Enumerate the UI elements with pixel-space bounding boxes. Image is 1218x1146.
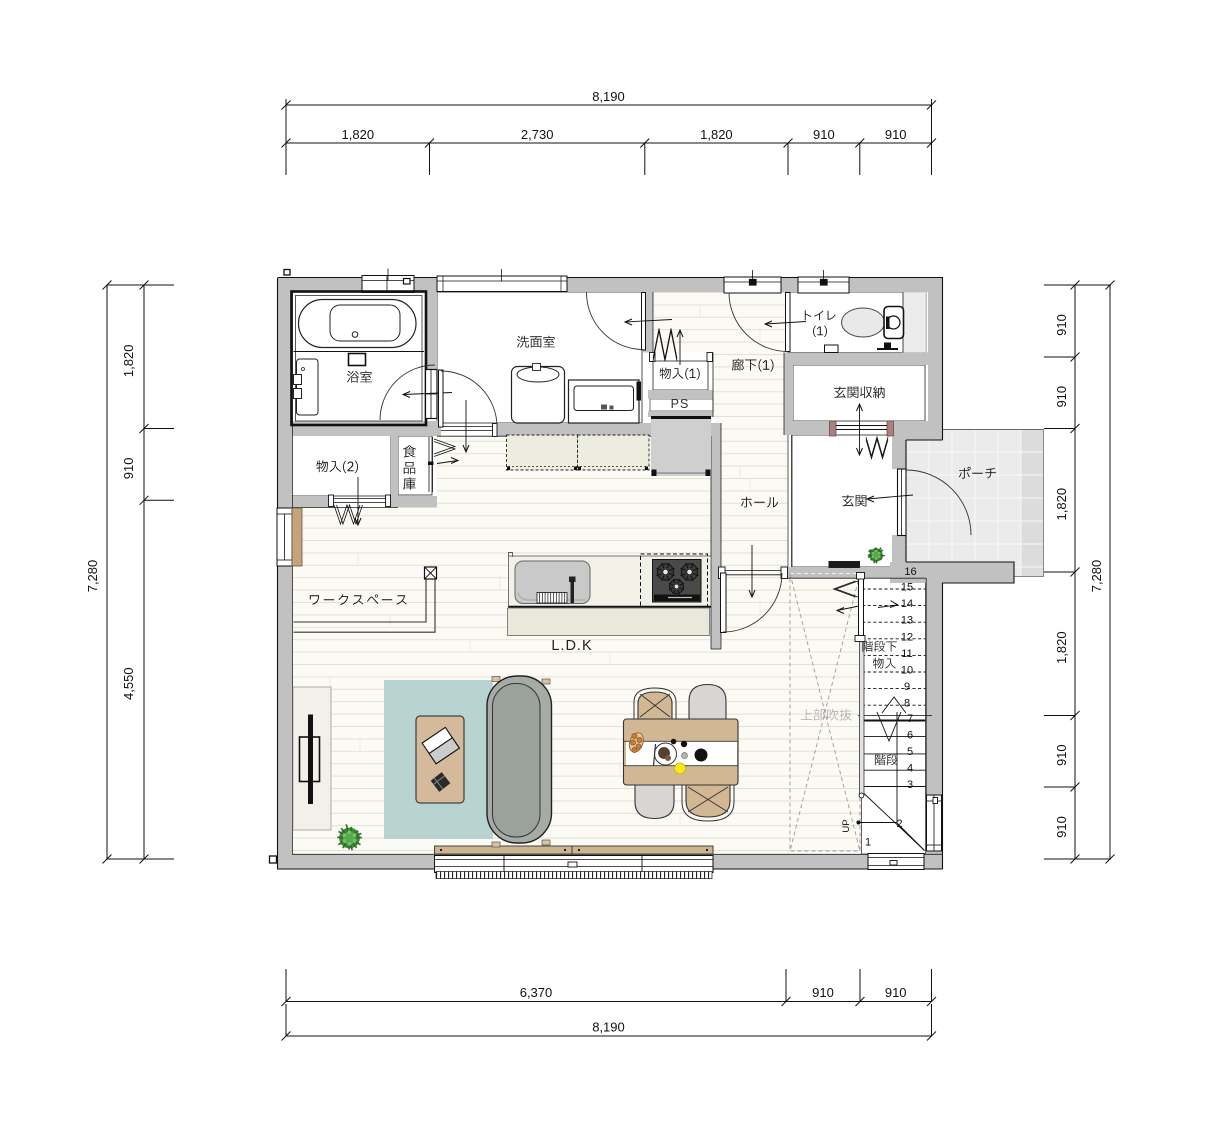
svg-text:4,550: 4,550 bbox=[121, 667, 136, 700]
svg-text:6,370: 6,370 bbox=[520, 985, 553, 1000]
svg-text:7: 7 bbox=[907, 713, 913, 725]
svg-text:910: 910 bbox=[885, 985, 907, 1000]
svg-text:4: 4 bbox=[907, 763, 913, 775]
svg-text:910: 910 bbox=[1054, 816, 1069, 838]
svg-text:910: 910 bbox=[121, 458, 136, 480]
svg-text:10: 10 bbox=[901, 665, 913, 677]
svg-text:1,820: 1,820 bbox=[121, 345, 136, 378]
svg-text:910: 910 bbox=[812, 985, 834, 1000]
svg-text:910: 910 bbox=[1054, 314, 1069, 336]
svg-text:UP: UP bbox=[841, 819, 852, 832]
svg-text:13: 13 bbox=[901, 615, 913, 627]
svg-text:L.D.K: L.D.K bbox=[551, 638, 592, 654]
svg-text:3: 3 bbox=[907, 779, 913, 791]
svg-text:2,730: 2,730 bbox=[521, 127, 554, 142]
svg-text:910: 910 bbox=[1054, 744, 1069, 766]
svg-text:1,820: 1,820 bbox=[1054, 488, 1069, 521]
svg-text:7,280: 7,280 bbox=[1089, 560, 1104, 593]
svg-text:16: 16 bbox=[904, 566, 916, 578]
svg-text:11: 11 bbox=[901, 648, 912, 660]
svg-text:6: 6 bbox=[907, 730, 913, 742]
svg-text:15: 15 bbox=[901, 582, 913, 594]
svg-text:12: 12 bbox=[901, 631, 913, 643]
svg-text:1,820: 1,820 bbox=[342, 127, 375, 142]
svg-text:14: 14 bbox=[901, 598, 913, 610]
svg-text:910: 910 bbox=[1054, 386, 1069, 408]
svg-text:1,820: 1,820 bbox=[700, 127, 733, 142]
svg-text:9: 9 bbox=[904, 681, 910, 693]
svg-text:PS: PS bbox=[671, 397, 690, 411]
svg-text:1: 1 bbox=[865, 837, 871, 849]
svg-text:910: 910 bbox=[885, 127, 907, 142]
svg-text:8: 8 bbox=[904, 698, 910, 710]
svg-text:910: 910 bbox=[813, 127, 835, 142]
svg-text:2: 2 bbox=[896, 818, 902, 830]
svg-text:5: 5 bbox=[907, 746, 913, 758]
svg-text:8,190: 8,190 bbox=[592, 1020, 625, 1035]
svg-text:1,820: 1,820 bbox=[1054, 631, 1069, 664]
svg-text:7,280: 7,280 bbox=[85, 560, 100, 593]
svg-text:8,190: 8,190 bbox=[592, 89, 625, 104]
